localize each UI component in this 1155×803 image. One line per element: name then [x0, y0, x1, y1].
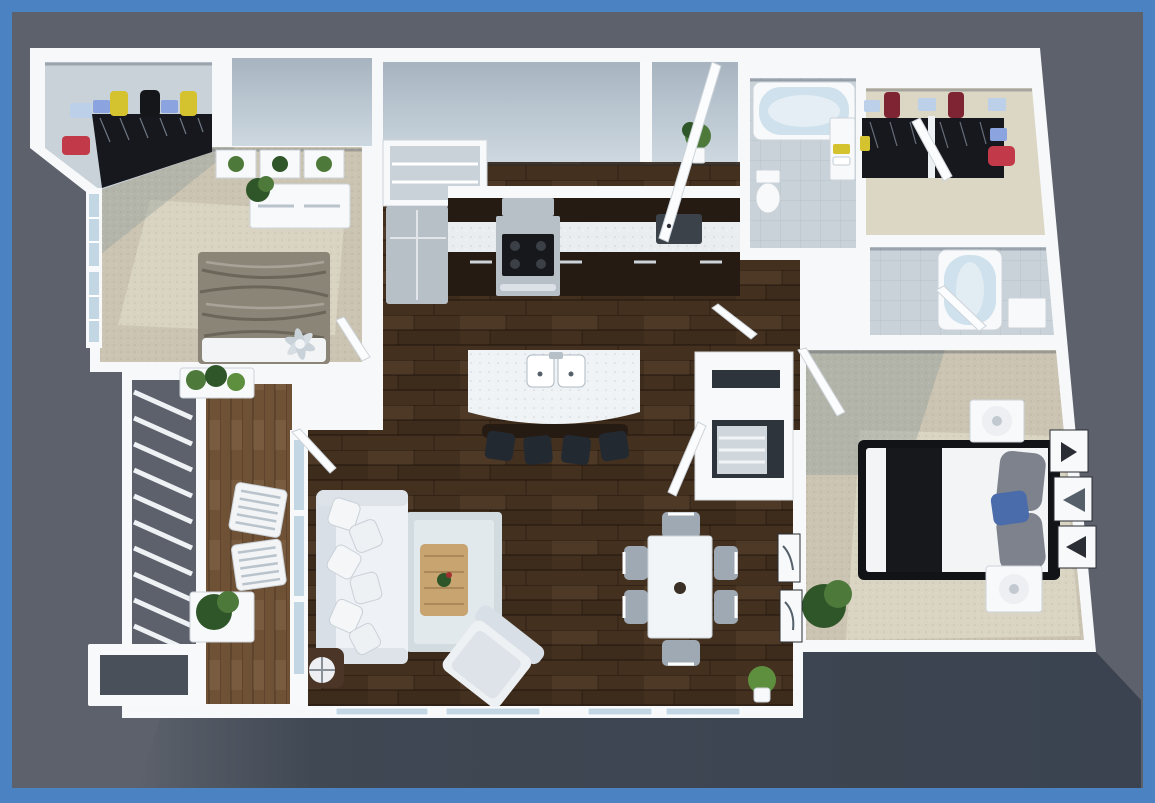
dining-frame-1 — [778, 534, 800, 582]
coffee-table-flowers — [446, 572, 452, 578]
bar-stool-2 — [523, 435, 553, 465]
closet1-red-box — [62, 136, 90, 155]
closet1-yellow-bag — [110, 91, 128, 116]
sink-drain-right — [569, 372, 574, 377]
dining-plant-pot — [754, 688, 770, 702]
print1-art — [228, 156, 244, 172]
burner-4 — [536, 259, 546, 269]
oven-handle — [500, 284, 556, 291]
planter-top-plant-2 — [205, 365, 227, 387]
island-faucet — [549, 352, 563, 359]
upper-closet-opening — [712, 370, 780, 388]
burner-3 — [510, 259, 520, 269]
bedroom2-north-wall-face — [232, 58, 372, 146]
living-window-glass-1 — [294, 440, 304, 510]
living-window-glass-3 — [294, 602, 304, 674]
south-sill-3 — [588, 708, 652, 715]
storage-step-inset — [100, 655, 188, 695]
dining-chair-left-1 — [624, 546, 648, 580]
lamp-2-finial — [1009, 584, 1019, 594]
front-door-handle — [667, 224, 671, 228]
sofa — [316, 490, 408, 664]
counter-ledge — [448, 186, 740, 198]
closet2-blue-pad-3 — [988, 98, 1006, 111]
bedroom2-plant-leaves — [258, 176, 274, 192]
master-plant-leaves — [824, 580, 852, 608]
yellow-towel-1 — [833, 144, 850, 154]
island-sink-right — [558, 355, 585, 387]
bar-stool-4 — [598, 430, 630, 462]
range-hood — [502, 198, 554, 216]
closet2-red-box — [988, 146, 1015, 166]
master-bed-runner — [886, 448, 942, 572]
bedroom2-window-glass-1 — [89, 194, 99, 266]
print2-art — [272, 156, 288, 172]
dining-chair-bottom — [662, 640, 700, 666]
dining-chair-left-2 — [624, 590, 648, 624]
floor-plan-canvas — [0, 0, 1155, 803]
floor-plan-render — [0, 0, 1155, 803]
closet2-crimson-bag-1 — [884, 92, 900, 118]
closet2-blue-box — [990, 128, 1007, 141]
bar-stool-3 — [560, 434, 591, 465]
closet2-blue-pad-2 — [918, 98, 936, 111]
toilet-tank — [756, 170, 780, 183]
closet2-crimson-bag-2 — [948, 92, 964, 118]
dining-chair-right-2 — [714, 590, 738, 624]
entry-wall-stub — [640, 62, 652, 162]
burner-1 — [510, 241, 520, 251]
tub-water-highlight — [768, 95, 840, 127]
white-towel — [833, 157, 850, 165]
south-window-sills — [336, 708, 740, 715]
toilet-bowl — [756, 183, 780, 213]
dining-chair-right-1 — [714, 546, 738, 580]
planter-bottom-leaves — [217, 591, 239, 613]
lounge-chair-2 — [231, 539, 287, 592]
closet1-blue-pad-2 — [161, 100, 178, 113]
lamp-1-finial — [992, 416, 1002, 426]
living-window-glass-2 — [294, 516, 304, 596]
table-centerpiece — [674, 582, 686, 594]
dining-frame-2 — [780, 590, 802, 642]
master-pillow-blue — [990, 490, 1030, 527]
closet2-yellow-box — [860, 136, 870, 151]
master-vanity — [1008, 298, 1046, 328]
lounge-chair-1 — [228, 482, 288, 538]
closet1-lightblue-box — [70, 103, 92, 118]
base-cabinets — [448, 252, 740, 296]
bedroom2-wall-prints — [216, 150, 344, 178]
planter-top-plant-1 — [186, 370, 206, 390]
fan-hub — [295, 339, 305, 349]
burner-2 — [536, 241, 546, 251]
closet1-black-bag — [140, 90, 160, 117]
south-sill-2 — [446, 708, 540, 715]
south-sill-4 — [666, 708, 740, 715]
cooktop — [502, 234, 554, 276]
print3-art — [316, 156, 332, 172]
sink-drain-left — [538, 372, 543, 377]
closet2-blue-pad-1 — [864, 100, 880, 112]
south-sill-1 — [336, 708, 428, 715]
planter-top-plant-3 — [227, 373, 245, 391]
master-bed — [858, 440, 1060, 580]
closet1-blue-pad — [93, 100, 110, 113]
bedroom2-window-glass-2 — [89, 272, 99, 342]
bar-stool-1 — [484, 430, 516, 462]
dining-chair-top — [662, 512, 700, 538]
closet1-yellow-bag-2 — [180, 91, 197, 116]
island-sink-left — [527, 355, 554, 387]
sofa-arm-top — [318, 490, 408, 506]
